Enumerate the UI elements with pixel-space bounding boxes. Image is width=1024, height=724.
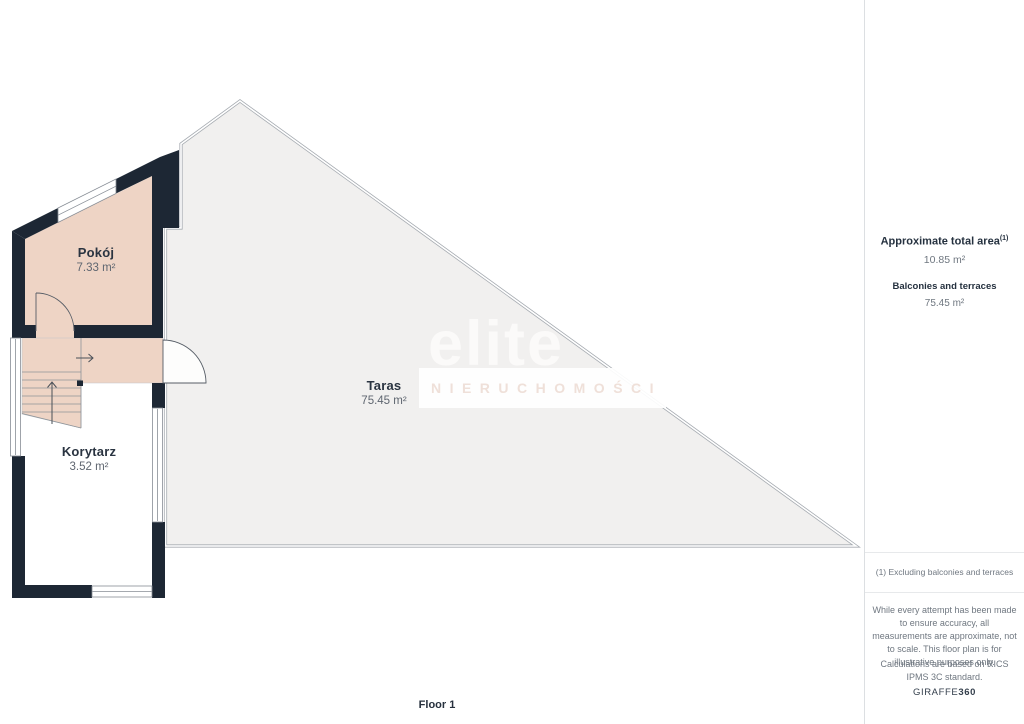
wall-south xyxy=(12,585,92,598)
room-label-pokoj: Pokój 7.33 m² xyxy=(77,245,116,274)
corridor-floor xyxy=(22,338,163,428)
terrace-taras xyxy=(166,101,857,546)
total-area-label: Approximate total area(1) xyxy=(865,235,1024,248)
window-west xyxy=(11,338,21,456)
sidebar-divider xyxy=(865,592,1024,593)
floor-title: Floor 1 xyxy=(419,699,456,711)
floorplan-page: elite NIERUCHOMOŚCI Pokój 7.33 m² Taras … xyxy=(0,0,1024,724)
giraffe360-logo: GIRAFFE360 xyxy=(865,687,1024,698)
room-label-taras: Taras 75.45 m² xyxy=(361,378,406,407)
room-area: 3.52 m² xyxy=(62,461,116,473)
sidebar-divider xyxy=(865,552,1024,553)
footnote-text: (1) Excluding balconies and terraces xyxy=(867,567,1022,577)
room-name: Taras xyxy=(361,378,406,393)
room-name: Korytarz xyxy=(62,444,116,459)
wall-se-corner xyxy=(152,522,165,598)
room-name: Pokój xyxy=(77,245,116,260)
room-fills xyxy=(22,176,163,428)
window-south xyxy=(92,586,152,597)
balconies-label: Balconies and terraces xyxy=(865,281,1024,292)
wall-pokoj-south-right xyxy=(74,325,152,338)
wall-west-lower xyxy=(12,456,25,598)
summary-sidebar: Approximate total area(1) 10.85 m² Balco… xyxy=(864,0,1024,724)
balconies-value: 75.45 m² xyxy=(865,298,1024,309)
wall-pokoj-south-left xyxy=(25,325,36,338)
calculations-text: Calculations are based on RICS IPMS 3C s… xyxy=(872,658,1017,684)
total-area-footnote-marker: (1) xyxy=(1000,235,1009,242)
wall-east-mid xyxy=(152,383,165,408)
room-area: 75.45 m² xyxy=(361,395,406,407)
wall-west-upper xyxy=(12,231,25,338)
area-summary: Approximate total area(1) 10.85 m² Balco… xyxy=(865,235,1024,309)
room-label-korytarz: Korytarz 3.52 m² xyxy=(62,444,116,473)
stair-newel-post xyxy=(77,381,83,387)
room-area: 7.33 m² xyxy=(77,262,116,274)
total-area-value: 10.85 m² xyxy=(865,254,1024,266)
window-east xyxy=(153,408,163,522)
